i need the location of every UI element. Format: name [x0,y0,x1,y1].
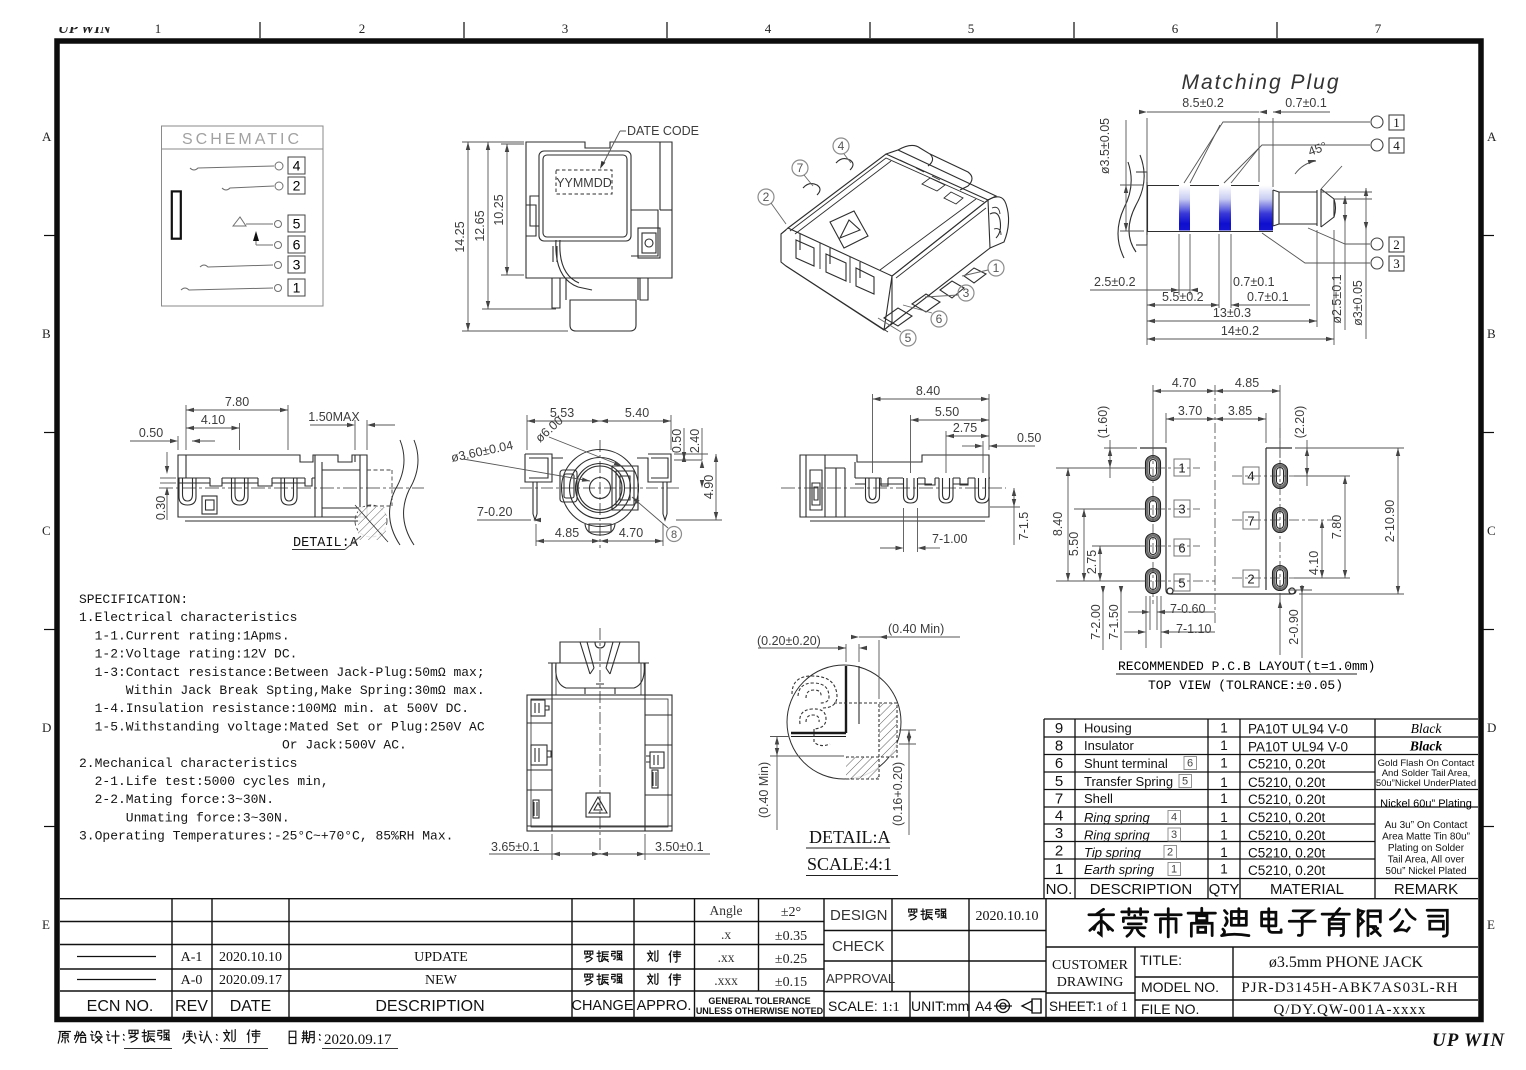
svg-text:6: 6 [1172,21,1179,36]
svg-text:1: 1 [1220,791,1228,806]
svg-text:PA10T UL94 V-0: PA10T UL94 V-0 [1248,740,1348,755]
svg-text:SHEET:1 of 1: SHEET:1 of 1 [1049,999,1128,1014]
svg-text:.x: .x [721,927,731,942]
svg-text:Angle: Angle [710,903,743,918]
svg-text:4: 4 [838,139,845,153]
svg-text:2: 2 [293,178,301,194]
svg-text:6: 6 [1055,755,1063,772]
svg-text:3.65±0.1: 3.65±0.1 [491,840,540,854]
svg-text:SPECIFICATION:: SPECIFICATION: [79,592,188,607]
svg-text:Area Matte Tin 80u”: Area Matte Tin 80u” [1382,832,1470,843]
svg-text:5.5±0.2: 5.5±0.2 [1162,290,1204,304]
svg-text:TOP VIEW (TOLRANCE:±0.05): TOP VIEW (TOLRANCE:±0.05) [1148,678,1343,693]
svg-text:8.40: 8.40 [1051,512,1065,536]
svg-text:2-2.Mating force:3~30N.: 2-2.Mating force:3~30N. [95,792,274,807]
svg-text:CUSTOMER: CUSTOMER [1052,958,1129,973]
svg-text:C5210, 0.20t: C5210, 0.20t [1248,828,1326,843]
svg-text:Matching Plug: Matching Plug [1181,71,1340,94]
svg-text:6: 6 [293,237,301,253]
svg-text:0.50: 0.50 [139,426,163,440]
svg-text:3.85: 3.85 [1228,404,1252,418]
svg-text:4: 4 [1247,469,1254,484]
svg-text:50u” Nickel Plated: 50u” Nickel Plated [1385,866,1466,877]
svg-text:YYMMDD: YYMMDD [556,176,612,190]
svg-text:PA10T UL94 V-0: PA10T UL94 V-0 [1248,722,1348,737]
svg-text:E: E [1487,917,1495,932]
svg-text:SCALE: 1:1: SCALE: 1:1 [828,998,900,1015]
svg-text:3.Operating Temperatures:-25°C: 3.Operating Temperatures:-25°C~+70°C, 85… [79,829,453,844]
svg-text:1: 1 [293,280,301,296]
svg-text:8: 8 [1055,738,1063,755]
svg-text:0.30: 0.30 [154,496,168,520]
svg-text:2: 2 [1393,237,1400,252]
svg-text:1.Electrical characteristics: 1.Electrical characteristics [79,610,297,625]
svg-text:GENERAL TOLERANCE: GENERAL TOLERANCE [708,996,810,1006]
svg-text:4.10: 4.10 [201,413,225,427]
svg-text:1: 1 [993,261,1000,275]
svg-text:TITLE:: TITLE: [1140,952,1182,968]
svg-text:(2.20): (2.20) [1293,406,1307,439]
svg-text:DATE CODE: DATE CODE [627,124,699,138]
svg-text:10.25: 10.25 [492,194,506,225]
svg-text:.xxx: .xxx [714,973,738,988]
svg-text:±0.35: ±0.35 [775,929,807,944]
svg-text:6: 6 [1187,758,1193,770]
svg-text:5: 5 [1178,576,1185,591]
svg-text:5: 5 [1055,773,1063,790]
svg-text:12.65: 12.65 [473,210,487,241]
svg-text:7-1.50: 7-1.50 [1107,604,1121,639]
svg-text:2: 2 [1247,572,1254,587]
svg-text:3: 3 [293,257,301,273]
svg-text:MODEL NO.: MODEL NO. [1141,979,1219,995]
svg-text:1: 1 [1393,115,1400,130]
svg-text:7-1.00: 7-1.00 [932,532,967,546]
svg-text:4.70: 4.70 [1172,376,1196,390]
svg-text:5: 5 [293,216,301,232]
svg-text:2.75: 2.75 [953,421,977,435]
svg-text:4.70: 4.70 [619,526,643,540]
svg-text:(1.60): (1.60) [1096,406,1110,439]
svg-text:Shunt terminal: Shunt terminal [1084,756,1168,771]
svg-text:(0.40 Min): (0.40 Min) [888,622,944,636]
svg-text:4: 4 [1171,812,1177,824]
svg-text:Transfer Spring: Transfer Spring [1084,774,1173,789]
svg-text:1-1.Current rating:1Apms.: 1-1.Current rating:1Apms. [95,628,290,643]
svg-text:0.7±0.1: 0.7±0.1 [1285,96,1327,110]
svg-text:Housing: Housing [1084,721,1132,736]
svg-text:Earth spring: Earth spring [1084,862,1155,877]
svg-text:4.85: 4.85 [555,526,579,540]
svg-text:REMARK: REMARK [1394,881,1458,898]
svg-text:Tip spring: Tip spring [1084,845,1142,860]
svg-text:DETAIL:A: DETAIL:A [809,827,891,847]
svg-text:Unmating force:3~30N.: Unmating force:3~30N. [126,810,290,825]
svg-text:B: B [42,326,51,341]
svg-text:7: 7 [797,161,804,175]
svg-text:ECN NO.: ECN NO. [87,998,154,1015]
svg-text:7: 7 [1055,791,1063,808]
svg-text:5.50: 5.50 [1067,532,1081,556]
svg-text:A-1: A-1 [181,950,203,965]
svg-text:±0.25: ±0.25 [775,952,807,967]
svg-text:C5210, 0.20t: C5210, 0.20t [1248,846,1326,861]
svg-text:7: 7 [1375,21,1382,36]
svg-text:7-0.60: 7-0.60 [1170,602,1205,616]
svg-text:A: A [42,129,52,144]
svg-text:50u”Nickel UnderPlated: 50u”Nickel UnderPlated [1376,778,1476,789]
svg-text:1: 1 [1055,861,1063,878]
svg-text:C5210, 0.20t: C5210, 0.20t [1248,792,1326,807]
svg-text:±0.15: ±0.15 [775,975,807,990]
svg-text:E: E [42,917,50,932]
svg-text:Ring spring: Ring spring [1084,828,1151,843]
svg-text:1-2:Voltage rating:12V DC.: 1-2:Voltage rating:12V DC. [95,647,298,662]
svg-text:4.90: 4.90 [702,475,716,499]
svg-text:3: 3 [1178,502,1185,517]
svg-text:0.7±0.1: 0.7±0.1 [1233,275,1275,289]
svg-text:D: D [42,720,51,735]
svg-text:NO.: NO. [1046,881,1073,898]
svg-text:8: 8 [671,529,677,541]
svg-text:DESCRIPTION: DESCRIPTION [1090,881,1193,898]
svg-text:6: 6 [936,312,943,326]
svg-text:UNIT:mm: UNIT:mm [911,998,969,1014]
svg-text:MATERIAL: MATERIAL [1270,881,1344,898]
svg-text:3: 3 [1393,256,1400,271]
svg-text:ø2.5±0.1: ø2.5±0.1 [1330,274,1344,323]
svg-text:ø3.5mm PHONE JACK: ø3.5mm PHONE JACK [1269,954,1424,971]
svg-text:SCHEMATIC: SCHEMATIC [182,131,302,148]
svg-text:1: 1 [1220,828,1228,843]
svg-text:UPDATE: UPDATE [414,950,468,965]
svg-text:1: 1 [1220,845,1228,860]
svg-text:1-5.Withstanding voltage:Mated: 1-5.Withstanding voltage:Mated Set or Pl… [95,719,485,734]
svg-text:2020.09.17: 2020.09.17 [219,973,282,988]
svg-text:DETAIL:A: DETAIL:A [293,536,359,551]
svg-text:DRAWING: DRAWING [1057,975,1124,990]
svg-text:6: 6 [1178,541,1185,556]
svg-text:2: 2 [763,190,770,204]
svg-text:.xx: .xx [718,950,735,965]
svg-text:3: 3 [562,21,569,36]
svg-text:2020.10.10: 2020.10.10 [219,950,282,965]
svg-text:Q/DY.QW-001A-xxxx: Q/DY.QW-001A-xxxx [1274,1002,1427,1018]
svg-text:1: 1 [1171,864,1177,876]
svg-text:5: 5 [905,331,912,345]
svg-text:9: 9 [1055,720,1063,737]
svg-text:2.5±0.2: 2.5±0.2 [1094,275,1136,289]
svg-text:(0.40 Min): (0.40 Min) [757,762,771,818]
svg-text:DATE: DATE [230,998,271,1015]
svg-text:Plating on Solder: Plating on Solder [1388,843,1465,854]
svg-text:CHANGE: CHANGE [571,998,633,1014]
svg-text:Within Jack Break Spting,Make: Within Jack Break Spting,Make Spring:30m… [126,683,485,698]
svg-text:1.50MAX: 1.50MAX [308,410,360,424]
svg-text:7.80: 7.80 [1330,515,1344,539]
svg-text:14±0.2: 14±0.2 [1221,324,1259,338]
svg-text:C5210, 0.20t: C5210, 0.20t [1248,757,1326,772]
svg-text:C: C [42,523,51,538]
svg-text:7-1.10: 7-1.10 [1176,622,1211,636]
svg-text:A-0: A-0 [181,973,203,988]
svg-text:2.Mechanical characteristics: 2.Mechanical characteristics [79,756,297,771]
svg-text:4: 4 [293,158,301,174]
svg-text:2.40: 2.40 [688,429,702,453]
svg-text:NEW: NEW [425,973,458,988]
svg-text:1-4.Insulation resistance:100M: 1-4.Insulation resistance:100MΩ min. at … [95,701,469,716]
svg-text:5: 5 [968,21,975,36]
svg-text:Or Jack:500V AC.: Or Jack:500V AC. [282,738,407,753]
svg-text:C5210, 0.20t: C5210, 0.20t [1248,775,1326,790]
svg-text:1: 1 [1220,775,1228,790]
svg-text:Shell: Shell [1084,791,1113,806]
svg-text:0.50: 0.50 [670,429,684,453]
svg-text:14.25: 14.25 [453,221,467,252]
svg-text:5: 5 [1182,776,1188,788]
svg-text:2: 2 [1167,847,1173,859]
svg-text:Tail Area, All over: Tail Area, All over [1388,855,1465,866]
svg-text:2020.09.17: 2020.09.17 [324,1032,392,1048]
svg-text:1-3:Contact resistance:Between: 1-3:Contact resistance:Between Jack-Plug… [95,665,485,680]
svg-text:DESIGN: DESIGN [830,907,888,924]
svg-text:REV: REV [175,998,208,1015]
svg-text:RECOMMENDED P.C.B LAYOUT(t=1.0: RECOMMENDED P.C.B LAYOUT(t=1.0mm) [1118,659,1375,674]
svg-text:Black: Black [1411,721,1443,736]
svg-text:2-0.90: 2-0.90 [1287,609,1301,644]
svg-text:1: 1 [1220,810,1228,825]
svg-text:2: 2 [359,21,366,36]
svg-text:Ring spring: Ring spring [1084,810,1151,825]
svg-text:APPRO.: APPRO. [637,998,692,1014]
svg-text:4: 4 [765,21,772,36]
svg-text:B: B [1487,326,1496,341]
svg-text:Nickel 60u” Plating: Nickel 60u” Plating [1380,798,1472,810]
svg-text:D: D [1487,720,1496,735]
svg-text:8.5±0.2: 8.5±0.2 [1182,96,1224,110]
svg-text:7-2.00: 7-2.00 [1089,604,1103,639]
svg-text:SCALE:4:1: SCALE:4:1 [807,854,892,874]
svg-text:QTY: QTY [1209,881,1240,898]
svg-text:2020.10.10: 2020.10.10 [976,909,1039,924]
svg-text:CHECK: CHECK [832,938,885,955]
svg-text:APPROVAL: APPROVAL [826,971,895,986]
svg-text:3.50±0.1: 3.50±0.1 [655,840,704,854]
svg-text:3: 3 [963,286,970,300]
svg-text:7.80: 7.80 [225,395,249,409]
svg-text:2.75: 2.75 [1085,550,1099,574]
svg-text:1: 1 [1220,721,1228,736]
svg-text:2-1.Life test:5000 cycles min,: 2-1.Life test:5000 cycles min, [95,774,329,789]
svg-text:1: 1 [1220,756,1228,771]
svg-text:PJR-D3145H-ABK7AS03L-RH: PJR-D3145H-ABK7AS03L-RH [1241,980,1458,996]
svg-text:7-1.5: 7-1.5 [1017,512,1031,541]
svg-text:Au 3u” On Contact: Au 3u” On Contact [1385,820,1468,831]
svg-text:C: C [1487,523,1496,538]
svg-text:C5210, 0.20t: C5210, 0.20t [1248,863,1326,878]
svg-text:4.10: 4.10 [1307,551,1321,575]
svg-text:(0.20±0.20): (0.20±0.20) [757,634,821,648]
svg-text:7-0.20: 7-0.20 [477,505,512,519]
svg-text:7: 7 [1247,514,1254,529]
svg-text:0.7±0.1: 0.7±0.1 [1247,290,1289,304]
svg-text:±2°: ±2° [781,905,801,920]
svg-text:1: 1 [1178,461,1185,476]
svg-text:3.70: 3.70 [1178,404,1202,418]
svg-text:13±0.3: 13±0.3 [1213,306,1251,320]
svg-text:0.50: 0.50 [1017,431,1041,445]
svg-text:FILE NO.: FILE NO. [1141,1001,1199,1017]
svg-text:4.85: 4.85 [1235,376,1259,390]
svg-text:5.40: 5.40 [625,406,649,420]
svg-text:ø3±0.05: ø3±0.05 [1351,280,1365,326]
svg-text:1: 1 [155,21,162,36]
svg-text:1: 1 [1220,738,1228,753]
svg-text:3: 3 [1171,829,1177,841]
svg-text:4: 4 [1393,138,1400,153]
svg-text:1: 1 [1220,862,1228,877]
svg-text:8.40: 8.40 [916,384,940,398]
svg-text:(0.16+0.20): (0.16+0.20) [891,762,905,826]
svg-text:A: A [1487,129,1497,144]
svg-text:ø3.5±0.05: ø3.5±0.05 [1098,118,1112,174]
svg-text:4: 4 [1055,808,1063,825]
svg-text:UNLESS OTHERWISE NOTED: UNLESS OTHERWISE NOTED [696,1006,824,1016]
svg-text:Black: Black [1409,739,1442,754]
svg-text:5.50: 5.50 [935,405,959,419]
svg-text:DESCRIPTION: DESCRIPTION [375,998,484,1015]
svg-text:UP WIN: UP WIN [1432,1030,1505,1051]
svg-text:2-10.90: 2-10.90 [1383,500,1397,542]
svg-text:C5210, 0.20t: C5210, 0.20t [1248,810,1326,825]
svg-text:A4: A4 [975,998,992,1014]
svg-text:Insulator: Insulator [1084,738,1135,753]
svg-text:2: 2 [1055,843,1063,860]
svg-text:3: 3 [1055,825,1063,842]
